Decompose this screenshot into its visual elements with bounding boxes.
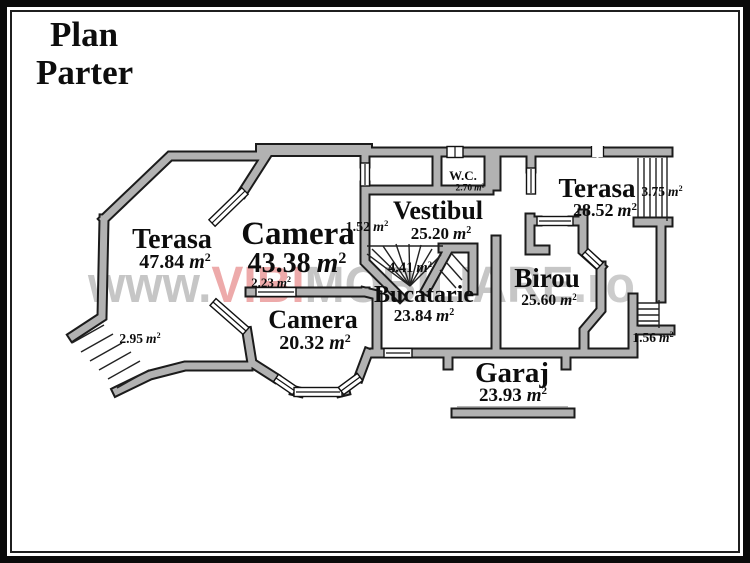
room-area-bucatarie: 23.84m2 <box>394 306 454 325</box>
room-label-camera-mica: Camera <box>268 305 358 334</box>
door-gap-top-wall <box>591 145 604 157</box>
area-label-1-52: 1.52m2 <box>346 218 389 235</box>
diagonal-door-terasa-camera-mica <box>210 299 249 335</box>
area-label-3-75: 3.75m2 <box>641 184 682 199</box>
title-line-2: Parter <box>36 54 133 92</box>
window-vestibul-stub <box>527 168 536 194</box>
area-label-2-95: 2.95m2 <box>119 331 160 346</box>
room-area-terasa-dreapta: 28.52m2 <box>573 200 638 220</box>
area-label-2-23: 2.23m2 <box>251 275 291 290</box>
room-label-camera-mare: Camera <box>241 216 355 252</box>
room-label-wc: W.C. <box>449 168 477 183</box>
room-label-terasa-dreapta: Terasa <box>558 173 636 203</box>
window-wc-top <box>447 147 463 158</box>
page-title: Plan Parter <box>36 16 133 92</box>
window-corridor <box>361 163 370 186</box>
room-area-garaj: 23.93m2 <box>479 385 548 406</box>
area-label-4-41: 4.41m2 <box>388 259 432 276</box>
room-label-vestibul: Vestibul <box>393 196 483 225</box>
room-area-terasa-stanga: 47.84m2 <box>139 250 211 273</box>
room-area-vestibul: 25.20m2 <box>411 224 471 243</box>
room-area-wc: 2.70m2 <box>455 184 484 194</box>
area-label-1-56: 1.56m2 <box>632 330 673 345</box>
stairs-bottom-right <box>638 300 659 328</box>
room-area-camera-mica: 20.32m2 <box>279 331 351 354</box>
window-birou-terasa <box>537 217 573 226</box>
title-line-1: Plan <box>50 16 133 54</box>
room-area-birou: 25.60m2 <box>521 292 577 309</box>
window-bucatarie-south <box>384 349 412 358</box>
bay-window-bottom <box>294 388 342 397</box>
room-label-bucatarie: Bucatarie <box>374 282 474 308</box>
floor-plan-page: Plan Parter www.VIBIMOBILIARE.ro <box>0 0 750 563</box>
room-label-birou: Birou <box>514 263 580 293</box>
